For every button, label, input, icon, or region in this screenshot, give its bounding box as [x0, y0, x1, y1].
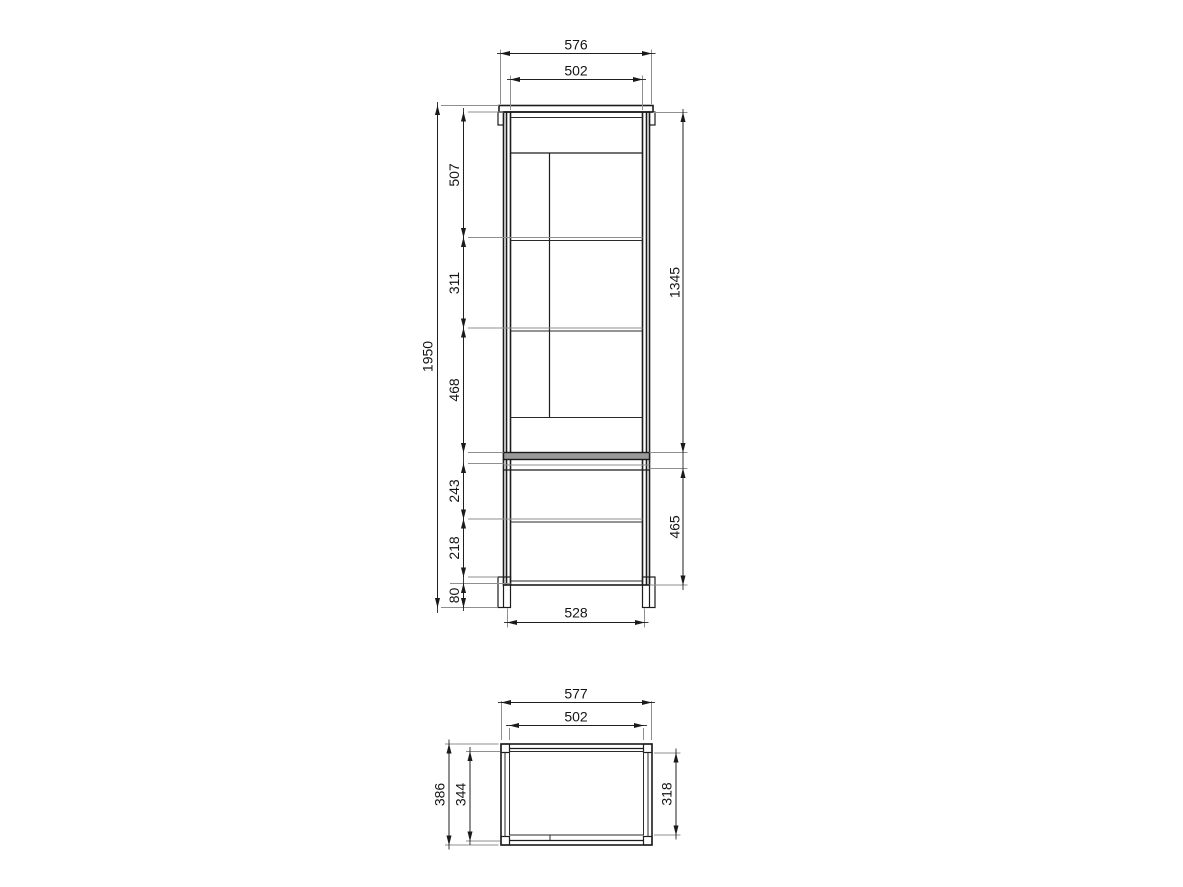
plan-post-front-right — [644, 744, 653, 753]
dim-label-segment-243: 243 — [446, 479, 462, 503]
front-view-extension-lines — [441, 50, 688, 628]
front-view-structure — [498, 106, 655, 608]
top-view-extension-lines — [445, 701, 681, 845]
front-view: 576 502 1950 507 311 468 243 218 80 — [420, 37, 688, 628]
mid-panel — [504, 453, 650, 460]
front-view-dimensions: 576 502 1950 507 311 468 243 218 80 — [420, 37, 684, 623]
dim-label-upper-section: 1345 — [667, 267, 683, 298]
dim-label-total-height: 1950 — [420, 341, 436, 372]
top-corner-post-right — [650, 112, 656, 125]
dim-label-base-width: 528 — [564, 605, 588, 621]
dim-label-segment-218: 218 — [446, 536, 462, 560]
dim-label-plan-mid-depth: 344 — [453, 783, 469, 807]
dim-label-inner-width: 502 — [564, 63, 588, 79]
top-corner-post-left — [498, 112, 504, 125]
technical-drawing-page: 576 502 1950 507 311 468 243 218 80 — [0, 0, 1183, 887]
dim-label-segment-311: 311 — [446, 272, 462, 295]
plan-post-back-left — [501, 837, 510, 846]
cabinet-dimension-drawing: 576 502 1950 507 311 468 243 218 80 — [0, 0, 1183, 887]
dim-label-plan-total-width: 577 — [564, 686, 588, 702]
dim-label-plan-inner-depth: 318 — [659, 782, 675, 806]
top-panel — [499, 106, 653, 113]
plan-outline — [501, 744, 652, 845]
dim-label-plan-inner-width: 502 — [564, 709, 588, 725]
top-view-structure — [501, 744, 652, 845]
dim-label-top-width: 576 — [564, 37, 588, 53]
cabinet-body-outline — [504, 112, 650, 585]
dim-label-segment-80: 80 — [446, 588, 462, 604]
top-view-dimensions: 577 502 386 344 318 — [432, 686, 677, 850]
dim-label-lower-section: 465 — [667, 515, 683, 539]
plan-post-front-left — [501, 744, 510, 753]
top-view: 577 502 386 344 318 — [432, 686, 681, 850]
plan-post-back-right — [644, 837, 653, 846]
plan-inner-well — [510, 752, 644, 836]
dim-label-plan-total-depth: 386 — [432, 783, 448, 807]
dim-label-segment-507: 507 — [446, 163, 462, 187]
dim-label-segment-468: 468 — [446, 378, 462, 402]
